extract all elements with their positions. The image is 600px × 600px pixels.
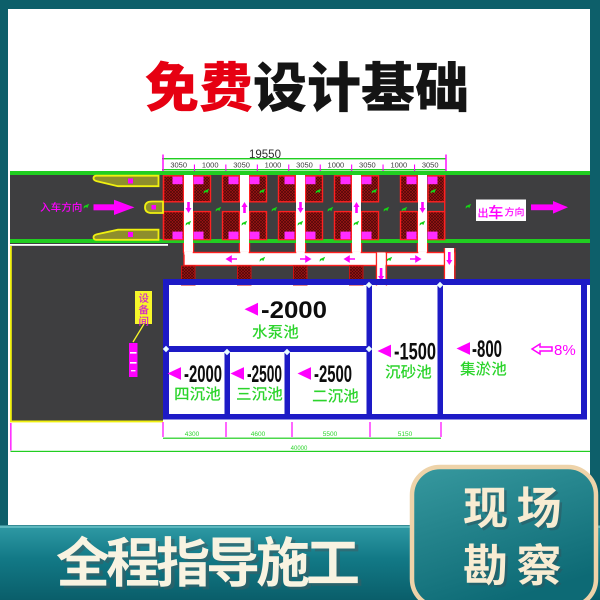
svg-text:1000: 1000	[328, 161, 345, 170]
svg-text:5500: 5500	[323, 431, 338, 438]
svg-text:-800: -800	[472, 336, 502, 363]
svg-text:-2500: -2500	[314, 361, 352, 388]
svg-text:19550: 19550	[249, 149, 281, 161]
svg-text:1000: 1000	[202, 161, 219, 170]
svg-text:4300: 4300	[185, 431, 200, 438]
svg-text:3050: 3050	[296, 161, 313, 170]
svg-text:1000: 1000	[390, 161, 407, 170]
svg-text:4600: 4600	[251, 431, 266, 438]
svg-text:3050: 3050	[422, 161, 439, 170]
svg-text:3050: 3050	[359, 161, 376, 170]
svg-text:1000: 1000	[265, 161, 282, 170]
svg-text:8%: 8%	[554, 342, 576, 359]
svg-text:-2000: -2000	[184, 361, 222, 388]
svg-text:3050: 3050	[233, 161, 250, 170]
svg-text:-1500: -1500	[394, 339, 436, 366]
svg-text:-2500: -2500	[247, 361, 282, 388]
svg-text:40000: 40000	[291, 446, 308, 452]
svg-text:5150: 5150	[398, 431, 413, 438]
svg-text:-2000: -2000	[261, 297, 327, 324]
svg-text:3050: 3050	[170, 161, 187, 170]
